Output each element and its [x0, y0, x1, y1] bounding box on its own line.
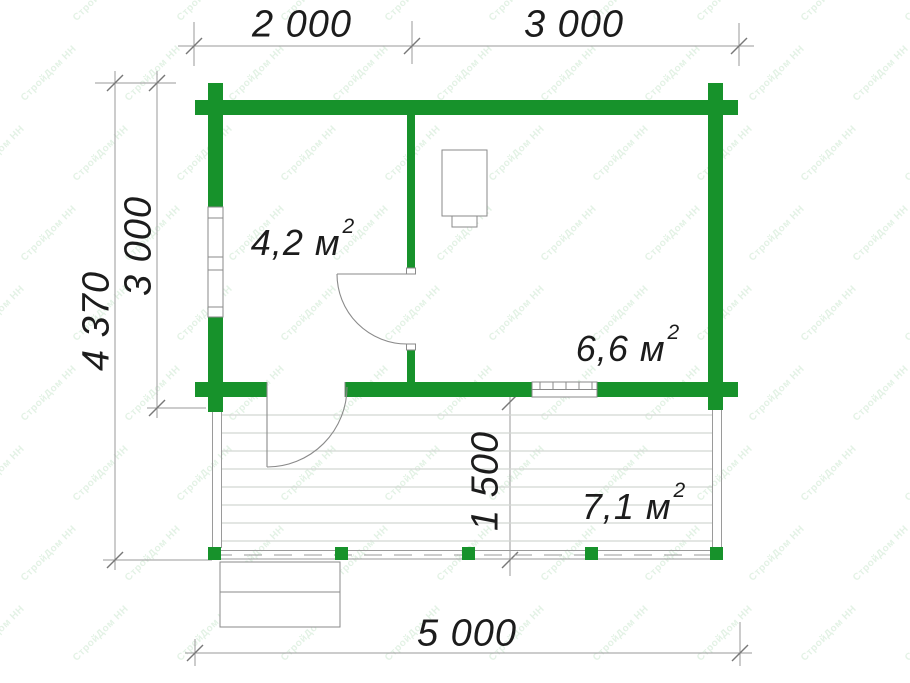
step-lower [220, 592, 340, 627]
windows [208, 207, 597, 397]
window-bottom-wall [532, 382, 597, 397]
stove-body [442, 150, 487, 216]
terrace-right-edge [713, 410, 722, 548]
dim-line-bottom [185, 622, 752, 666]
plan-drawing [0, 0, 910, 683]
stove-flue [452, 216, 477, 227]
terrace-left-edge [213, 412, 222, 548]
wall-partition-stub [407, 350, 415, 382]
interior-door-swing-arc [337, 274, 407, 344]
terrace-deck [213, 410, 722, 548]
deck-boards [222, 415, 712, 541]
wall-top [195, 100, 738, 115]
wall-partition-upper [407, 115, 415, 268]
entrance-steps [220, 562, 340, 627]
wall-bottom-seg2 [345, 382, 532, 397]
doors [267, 268, 416, 467]
window-left-wall [208, 207, 223, 317]
terrace-railing [208, 547, 723, 560]
wall-left-lower [208, 317, 223, 412]
dimension-ticks [107, 38, 748, 661]
floor-plan: СтройДом ННСтройДом ННСтройДом ННСтройДо… [0, 0, 910, 683]
interior-door [337, 268, 416, 350]
dim-line-top [178, 21, 754, 66]
wall-bottom-seg1 [195, 382, 267, 397]
wall-right [708, 83, 723, 410]
railing-posts [208, 547, 723, 560]
walls [195, 83, 738, 412]
dimension-lines [95, 21, 754, 666]
stove-symbol [442, 150, 487, 227]
wall-left-upper [208, 83, 223, 207]
terrace-door-swing-arc [267, 387, 347, 467]
terrace-door [267, 382, 347, 467]
dim-line-left [95, 71, 212, 570]
step-upper [220, 562, 340, 592]
